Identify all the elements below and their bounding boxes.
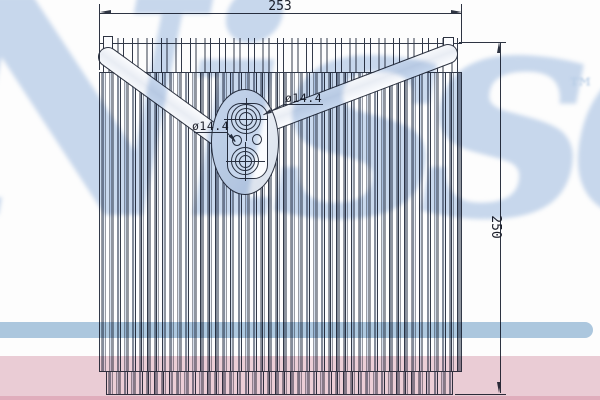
extension-line-height-bottom: [455, 394, 506, 395]
leader-underline-left: [194, 132, 228, 133]
dimension-arrow-height-top: [497, 42, 501, 53]
watermark-trademark-symbol: ™: [567, 72, 595, 105]
dimension-arrow-width-left: [100, 10, 111, 14]
dimension-label-width: 253: [258, 0, 302, 14]
port-bottom-crosshair-h: [226, 161, 265, 162]
watermark-pink-band-edge: [0, 396, 600, 400]
dimension-arrow-width-right: [451, 10, 462, 14]
leader-underline-right: [284, 104, 323, 105]
dimension-label-height: 250: [484, 205, 506, 249]
port-diameter-label-left: ø14.4: [192, 120, 229, 132]
core-top-header-line: [99, 43, 462, 44]
port-top-crosshair-v: [246, 98, 247, 141]
port-bottom-crosshair-v: [245, 142, 246, 181]
dimension-arrow-height-bottom: [497, 382, 501, 393]
bolt-hole-right: [252, 134, 262, 145]
evaporator-technical-drawing: ø14.4 ø14.4 253 250 Nissens ™: [0, 0, 600, 400]
core-bottom-tank: [106, 372, 453, 395]
port-diameter-label-right: ø14.4: [285, 92, 322, 104]
